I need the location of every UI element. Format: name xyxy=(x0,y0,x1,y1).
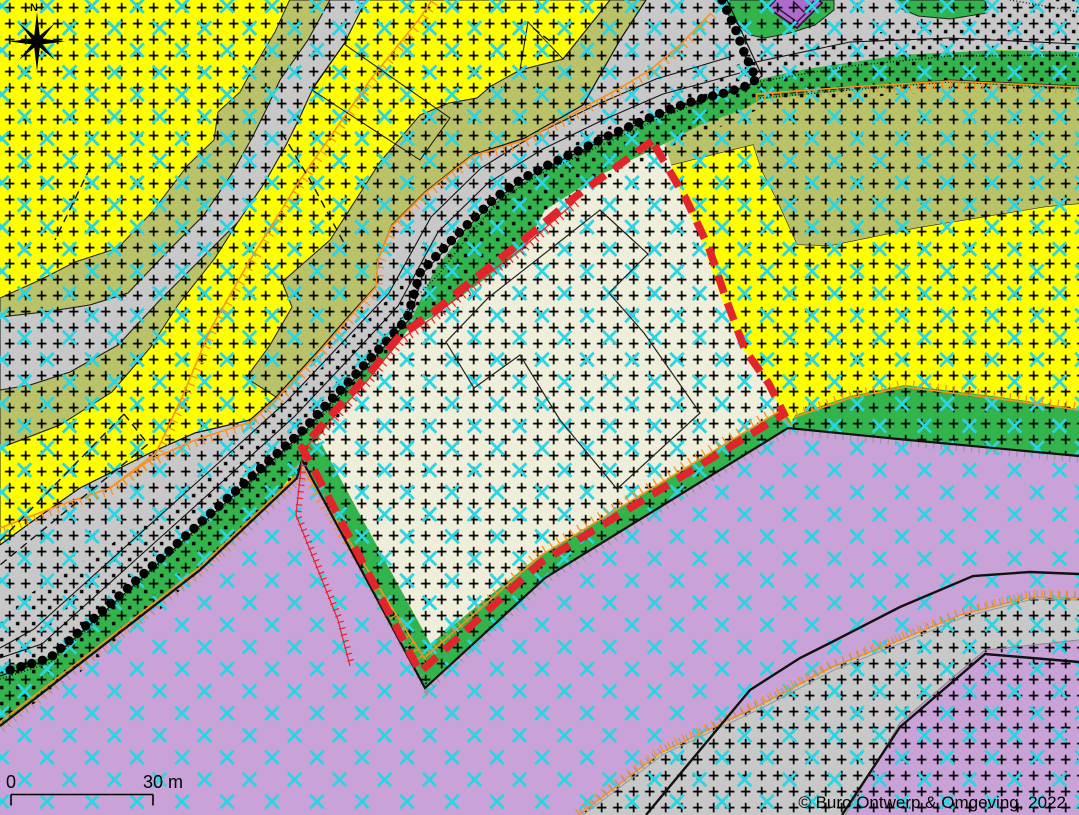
svg-text:N: N xyxy=(30,2,38,14)
svg-text:0: 0 xyxy=(6,772,16,792)
svg-text:© Buro Ontwerp & Omgeving, 202: © Buro Ontwerp & Omgeving, 2022 xyxy=(798,793,1066,812)
svg-text:30 m: 30 m xyxy=(143,772,183,792)
